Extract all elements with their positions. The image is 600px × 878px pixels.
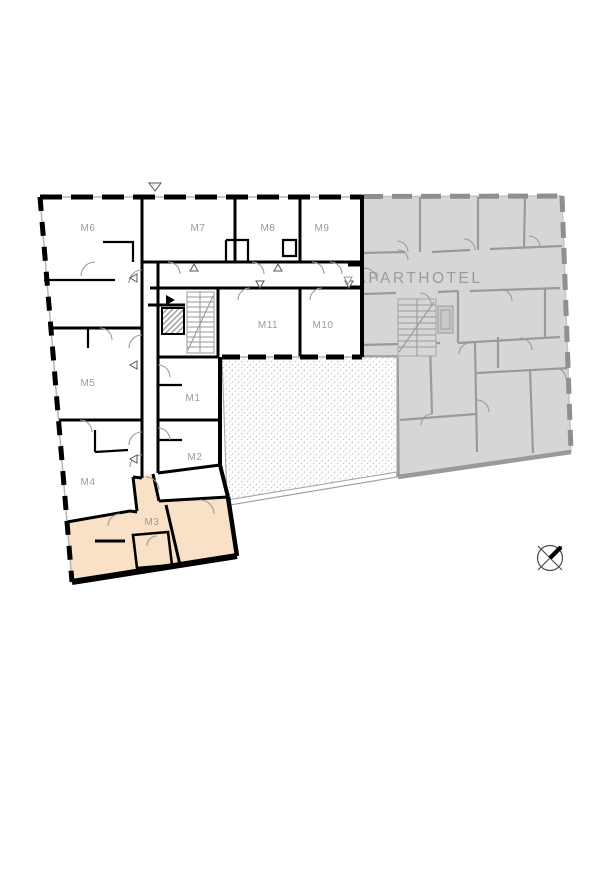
unit-region-m8[interactable] xyxy=(235,197,300,262)
unit-region-m11[interactable] xyxy=(218,288,300,357)
unit-region-m5[interactable] xyxy=(51,328,142,420)
unit-region-m9[interactable] xyxy=(300,197,362,262)
unit-region-m2[interactable] xyxy=(158,420,220,473)
unit-region-m10[interactable] xyxy=(300,288,362,357)
unit-region-m1[interactable] xyxy=(158,357,220,420)
floor-plan-svg: APARTHOTEL xyxy=(0,0,600,878)
unit-region-m7[interactable] xyxy=(142,197,235,262)
residential-elevator xyxy=(162,308,184,334)
floor-plan-canvas: APARTHOTEL xyxy=(0,0,600,878)
unit-region-m4[interactable] xyxy=(59,420,142,522)
unit-region-m6[interactable] xyxy=(40,197,142,328)
